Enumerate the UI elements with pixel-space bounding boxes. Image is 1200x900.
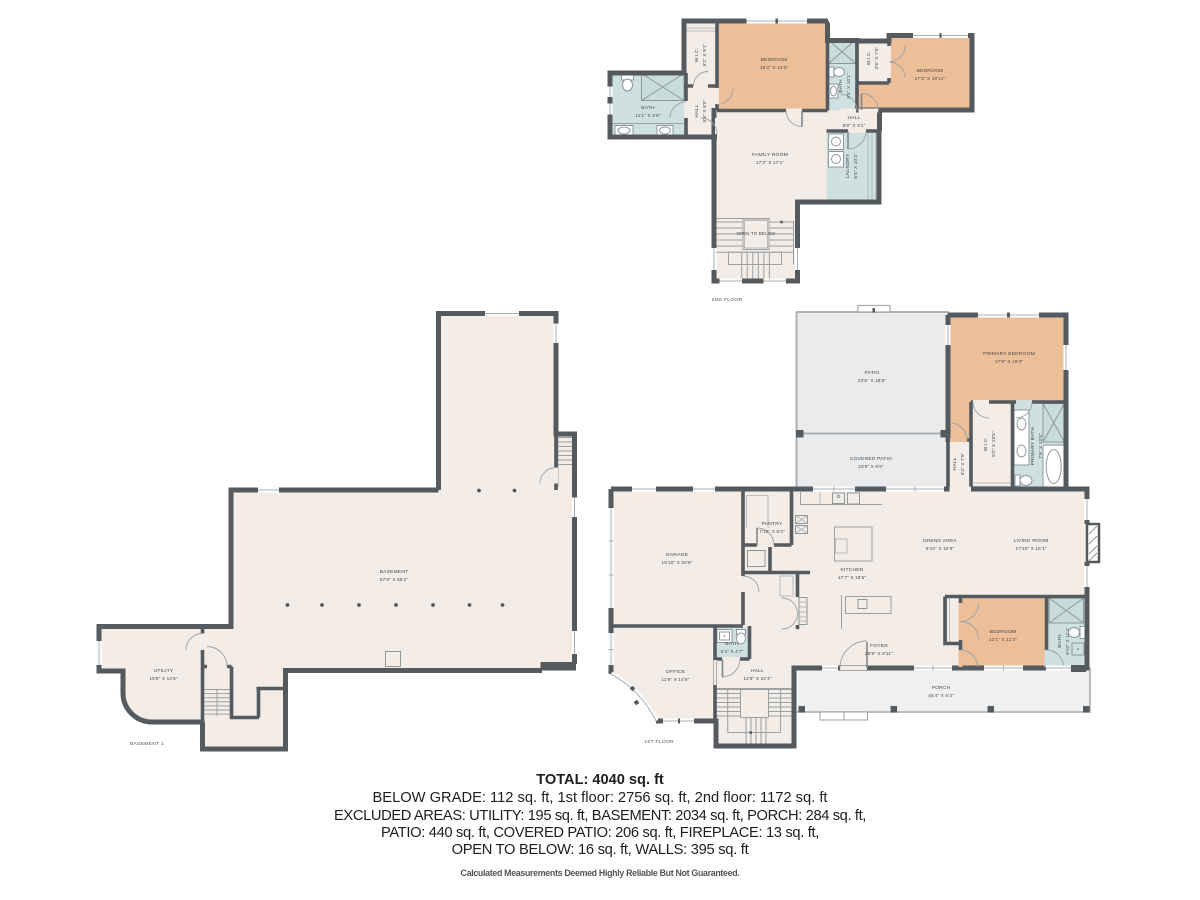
svg-text:KITCHEN: KITCHEN (841, 567, 864, 573)
svg-text:HALL: HALL (952, 457, 958, 470)
svg-text:GARAGE: GARAGE (666, 552, 689, 558)
svg-text:23'6" X 8'9": 23'6" X 8'9" (858, 464, 884, 469)
svg-text:BATH: BATH (1057, 634, 1063, 648)
svg-text:PORCH: PORCH (932, 685, 951, 691)
svg-text:W.I.C.: W.I.C. (866, 51, 872, 66)
svg-text:17'10" X 16'1": 17'10" X 16'1" (1015, 546, 1046, 551)
svg-text:26'9" X 8'11": 26'9" X 8'11" (865, 651, 893, 656)
svg-text:HALL: HALL (847, 115, 860, 121)
svg-text:LAUNDRY: LAUNDRY (845, 153, 851, 178)
svg-text:W.I.C.: W.I.C. (983, 437, 989, 452)
svg-text:HALL: HALL (751, 668, 764, 674)
svg-text:BATH: BATH (838, 79, 844, 93)
svg-text:17'7" X 18'5": 17'7" X 18'5" (838, 575, 866, 580)
svg-text:17'3" X 17'1": 17'3" X 17'1" (756, 160, 784, 165)
svg-text:BATH: BATH (641, 105, 655, 111)
svg-text:UTILITY: UTILITY (154, 668, 174, 674)
svg-text:FOYER: FOYER (870, 643, 888, 649)
svg-text:BATH: BATH (725, 641, 739, 647)
svg-text:BASEMENT: BASEMENT (380, 569, 409, 575)
svg-text:12'1" X 11'3": 12'1" X 11'3" (989, 637, 1017, 642)
svg-text:17'9" X 19'3": 17'9" X 19'3" (995, 359, 1023, 364)
svg-text:11'1" X 9'9": 11'1" X 9'9" (635, 113, 660, 118)
svg-text:PANTRY: PANTRY (762, 521, 783, 527)
svg-text:BEDROOM: BEDROOM (761, 57, 788, 63)
svg-text:DINING AREA: DINING AREA (923, 538, 957, 544)
svg-text:COVERED PATIO: COVERED PATIO (850, 456, 892, 462)
svg-text:OFFICE: OFFICE (666, 669, 686, 675)
svg-text:BEDROOM: BEDROOM (990, 629, 1017, 635)
svg-text:4'5" X 10'1": 4'5" X 10'1" (846, 73, 851, 99)
svg-text:4'6" X 7'0": 4'6" X 7'0" (874, 46, 879, 69)
svg-text:9'10" X 11'3": 9'10" X 11'3" (1065, 627, 1070, 655)
svg-text:23'6" X 18'8": 23'6" X 18'8" (858, 378, 886, 383)
svg-text:LIVING ROOM: LIVING ROOM (1014, 538, 1049, 544)
svg-text:PATIO: PATIO (865, 370, 880, 376)
svg-text:17'3" X 10'11": 17'3" X 10'11" (915, 76, 946, 81)
svg-text:1ST FLOOR: 1ST FLOOR (644, 739, 674, 745)
svg-text:W.I.C.: W.I.C. (694, 48, 700, 63)
svg-text:3'4" X 7'9": 3'4" X 7'9" (960, 452, 965, 475)
svg-text:45'4" X 6'3": 45'4" X 6'3" (928, 693, 954, 698)
svg-text:HALL: HALL (694, 104, 700, 117)
svg-text:5'6" X 8'0": 5'6" X 8'0" (702, 99, 707, 122)
svg-text:BEDROOM: BEDROOM (917, 68, 944, 74)
svg-text:OPEN TO BELOW: OPEN TO BELOW (736, 231, 776, 236)
svg-text:57'9" X 55'2": 57'9" X 55'2" (380, 577, 408, 582)
svg-text:7'9" X 13'5": 7'9" X 13'5" (1038, 433, 1043, 459)
svg-text:19'10" X 20'9": 19'10" X 20'9" (661, 560, 692, 565)
svg-text:2ND FLOOR: 2ND FLOOR (712, 297, 743, 303)
svg-text:5'2" X 9'1": 5'2" X 9'1" (702, 43, 707, 66)
svg-text:12'9" X 22'4": 12'9" X 22'4" (743, 676, 771, 681)
svg-text:BASEMENT 1: BASEMENT 1 (130, 741, 164, 747)
svg-text:PRIMARY BEDROOM: PRIMARY BEDROOM (983, 351, 1035, 357)
svg-text:15'8" X 14'6": 15'8" X 14'6" (149, 676, 177, 681)
svg-text:8'4" X 10'3": 8'4" X 10'3" (853, 153, 858, 179)
svg-text:7'10" X 8'3": 7'10" X 8'3" (759, 529, 785, 534)
svg-text:6'0" X 13'5": 6'0" X 13'5" (991, 431, 996, 457)
svg-text:11'9" X 14'6": 11'9" X 14'6" (662, 677, 690, 682)
svg-text:PRIMARY BATH: PRIMARY BATH (1030, 426, 1036, 465)
svg-text:8'8" X 3'1": 8'8" X 3'1" (843, 123, 866, 128)
svg-text:FAMILY ROOM: FAMILY ROOM (752, 152, 788, 158)
svg-text:5'4" X 4'7": 5'4" X 4'7" (721, 649, 744, 654)
svg-text:9'10" X 16'9": 9'10" X 16'9" (926, 546, 954, 551)
svg-text:16'3" X 13'3": 16'3" X 13'3" (760, 65, 788, 70)
